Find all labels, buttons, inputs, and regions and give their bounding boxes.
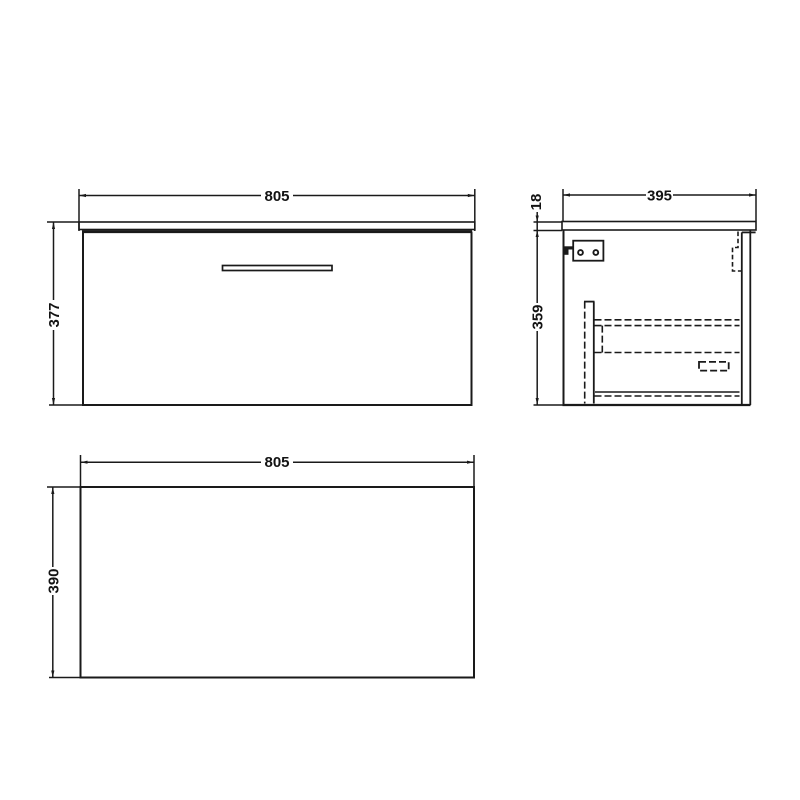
svg-text:359: 359 [530, 304, 547, 329]
svg-text:377: 377 [46, 302, 63, 327]
svg-text:805: 805 [264, 454, 289, 471]
svg-text:395: 395 [647, 188, 672, 205]
svg-text:390: 390 [45, 568, 62, 593]
svg-text:18: 18 [528, 194, 545, 211]
svg-text:805: 805 [264, 188, 289, 205]
